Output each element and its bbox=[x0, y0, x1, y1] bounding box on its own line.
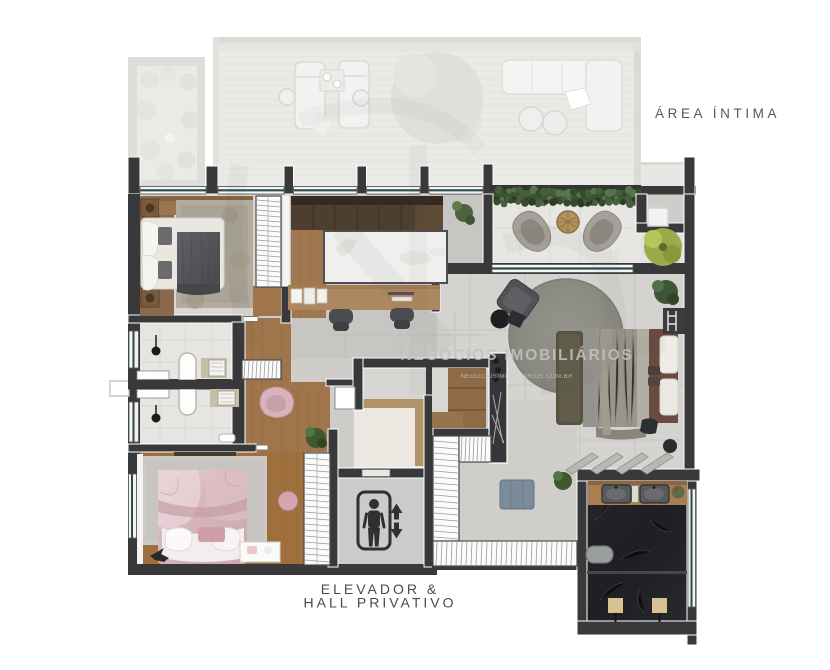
svg-text:NEGOCIOSIMOBILIARIOS.COM.BR: NEGOCIOSIMOBILIARIOS.COM.BR bbox=[461, 374, 573, 380]
svg-text:NEGÓCIOS IMOBILIÁRIOS: NEGÓCIOS IMOBILIÁRIOS bbox=[400, 346, 633, 364]
svg-text:ÁREA ÍNTIMA: ÁREA ÍNTIMA bbox=[655, 106, 780, 121]
svg-text:HALL PRIVATIVO: HALL PRIVATIVO bbox=[304, 595, 457, 611]
